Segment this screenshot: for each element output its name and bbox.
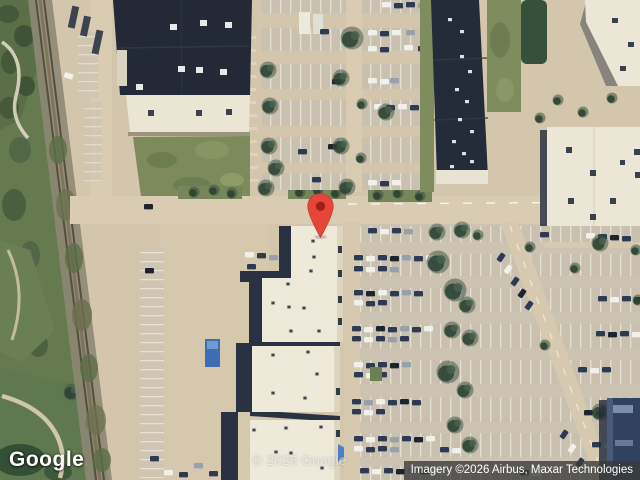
pin-dot xyxy=(316,202,325,211)
satellite-imagery xyxy=(0,0,640,480)
map-viewport[interactable]: © 2026 Google Google Imagery ©2026 Airbu… xyxy=(0,0,640,480)
copyright-watermark: © 2026 Google xyxy=(252,452,346,468)
map-pin[interactable] xyxy=(307,193,334,239)
google-logo[interactable]: Google xyxy=(9,448,84,472)
pin-body xyxy=(308,194,334,238)
warehouse-building xyxy=(113,0,252,136)
imagery-attribution: Imagery ©2026 Airbus, Maxar Technologies xyxy=(404,461,640,480)
